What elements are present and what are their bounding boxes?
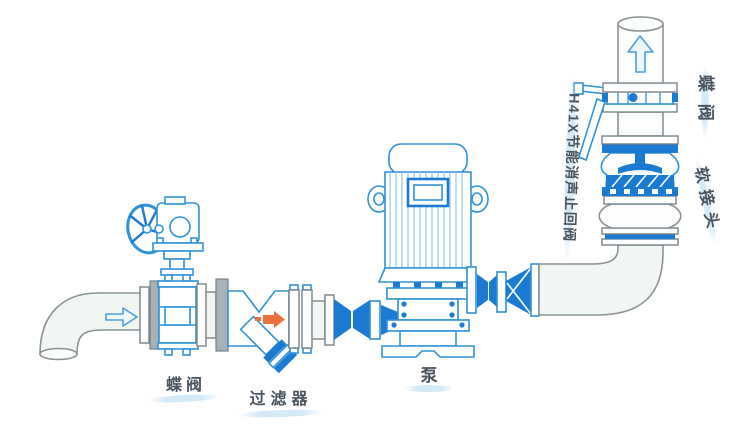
discharge-flanges-reducer xyxy=(467,264,539,316)
discharge-pipe-elbow xyxy=(539,245,663,315)
pump-base xyxy=(382,346,474,357)
inlet-butterfly-valve xyxy=(158,275,198,355)
flexible-joint xyxy=(599,196,681,228)
riser-bottom-flange-pair xyxy=(602,228,678,245)
label-strainer: 过滤器 xyxy=(241,391,321,409)
valve-outlet-flanges xyxy=(197,279,228,351)
inlet-elbow-pipe xyxy=(40,293,145,360)
strainer-outlet-flanges xyxy=(289,285,334,353)
diagram-canvas xyxy=(0,0,737,434)
strainer-body xyxy=(228,291,297,373)
riser-spool xyxy=(618,112,663,136)
label-pump: 泵 xyxy=(412,366,446,386)
pump-piping-diagram: 蝶阀 过滤器 泵 H41X节能消声止回阀 蝶阀 软接头 xyxy=(0,0,737,434)
pump-body xyxy=(382,288,474,357)
riser-flange-a xyxy=(603,83,677,92)
check-valve xyxy=(601,139,678,196)
gear-actuator xyxy=(123,197,203,275)
label-outlet-butterfly-valve: 蝶阀 xyxy=(695,70,715,138)
riser-flange-b xyxy=(603,104,677,112)
swoosh-pump xyxy=(404,385,454,392)
label-inlet-butterfly-valve: 蝶阀 xyxy=(153,377,219,395)
riser-flange-c xyxy=(602,136,678,144)
